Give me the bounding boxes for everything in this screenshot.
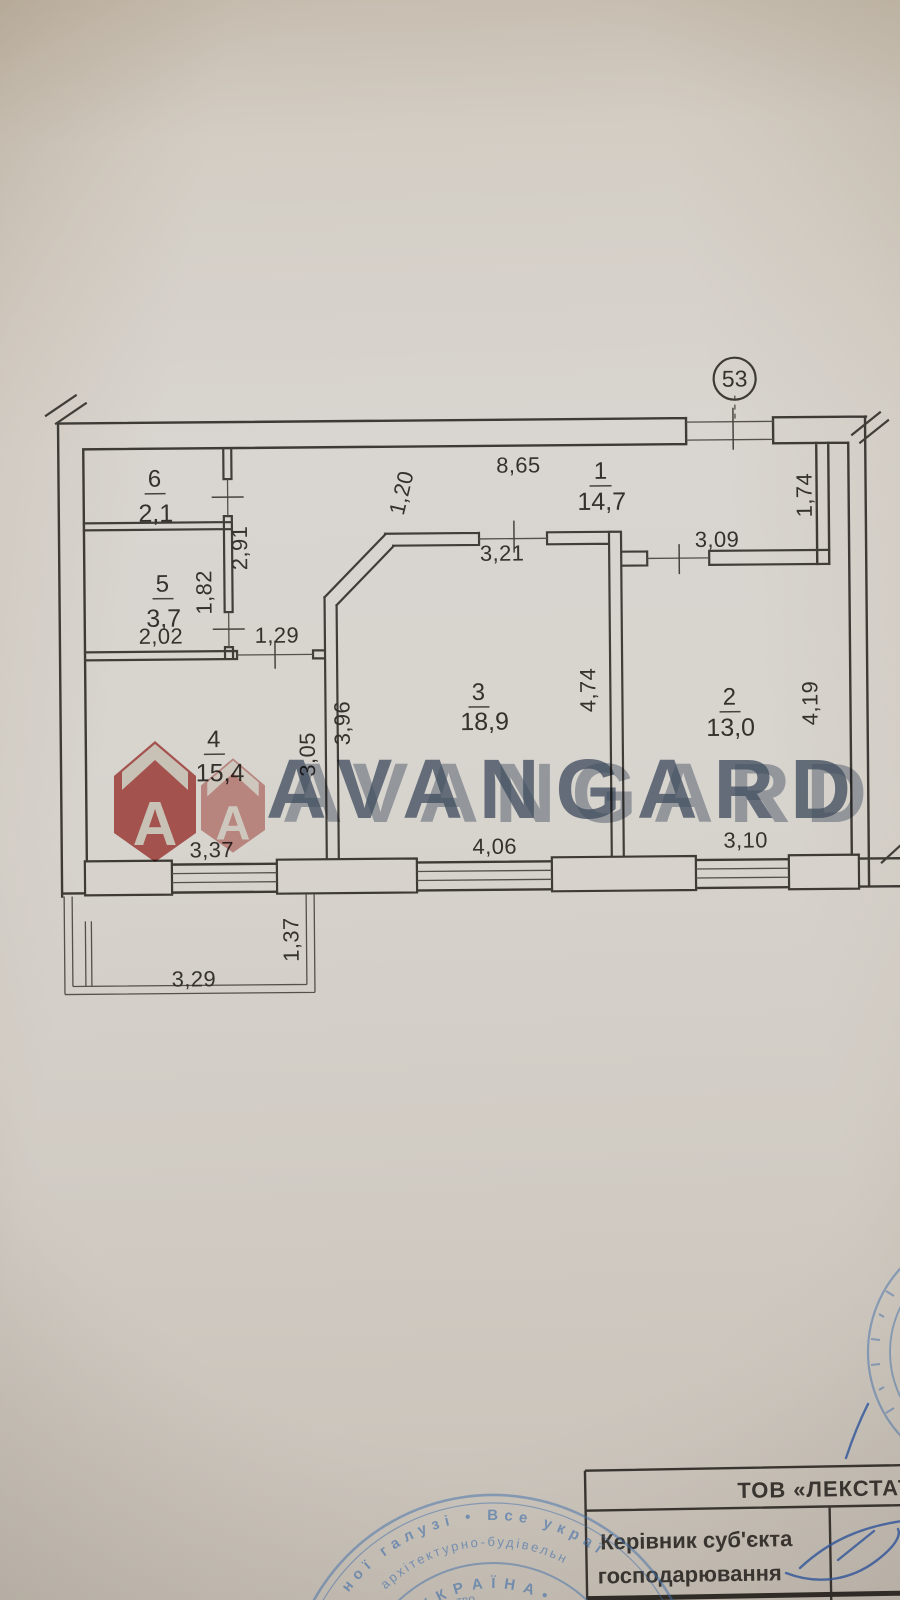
room-3-number: 3 <box>472 679 486 706</box>
room-1-number: 1 <box>594 458 608 485</box>
room-1-area: 14,7 <box>577 488 626 516</box>
dim-entry-side: 1,74 <box>791 473 816 518</box>
room-6-area: 2,1 <box>138 500 173 528</box>
room-labels: 1 14,7 2 13,0 3 18,9 4 15,4 5 3,7 6 2,1 <box>138 457 756 788</box>
room-4-number: 4 <box>207 726 221 753</box>
signature-stroke-3 <box>838 1531 874 1560</box>
room-number-underlines <box>145 485 741 755</box>
dim-room3-side: 4,74 <box>575 668 600 713</box>
signature-stroke-4 <box>846 1404 868 1458</box>
table-bottom-border <box>587 1593 900 1599</box>
dim-room2-side: 4,19 <box>797 681 822 726</box>
room-2-area: 13,0 <box>706 714 755 742</box>
signature-stroke-2 <box>800 1521 900 1568</box>
edge-stamp <box>868 1228 900 1476</box>
signature-stroke-1 <box>786 1529 899 1580</box>
company-name: ТОВ «ЛЕКСТАТ <box>737 1475 900 1503</box>
stamp-center-text: тво <box>456 1592 477 1600</box>
dim-balcony-width: 3,29 <box>172 966 217 991</box>
room-5-number: 5 <box>156 571 170 598</box>
role-line-2: господарювання <box>598 1560 782 1588</box>
dim-room2-door: 3,09 <box>695 527 740 552</box>
edge-stamp-glyph-marks <box>871 1253 900 1413</box>
dim-room3-top: 3,21 <box>480 541 525 566</box>
dim-room5-width: 2,02 <box>139 624 184 649</box>
dim-hall-side: 2,91 <box>227 526 252 571</box>
room-2-number: 2 <box>723 684 737 711</box>
stamp-inner-text: • У К Р А Ї Н А • <box>402 1566 554 1600</box>
edge-stamp-outer <box>868 1228 900 1476</box>
dim-top-width: 8,65 <box>496 452 541 477</box>
dim-room3-left: 3,96 <box>329 701 354 746</box>
floor-plan: 53 1 14,7 2 13,0 3 18,9 4 15,4 5 3,7 6 2… <box>45 356 900 994</box>
unit-badge: 53 <box>722 366 748 392</box>
dim-corridor-door: 1,29 <box>255 622 300 647</box>
footer-table: ТОВ «ЛЕКСТАТ Керівник суб'єкта господарю… <box>585 1465 900 1600</box>
dim-room5-side: 1,82 <box>191 570 216 615</box>
role-line-1: Керівник суб'єкта <box>600 1526 793 1554</box>
watermark-brand: AVANGARD <box>266 742 867 836</box>
brand-logo-icon <box>114 741 196 862</box>
floorplan-svg: A 53 1 14,7 2 13,0 3 18,9 4 <box>0 0 900 1600</box>
room-6-number: 6 <box>148 466 162 493</box>
room-3-area: 18,9 <box>460 708 509 736</box>
dim-chamfer: 1,20 <box>384 468 419 517</box>
scanned-floorplan-photo: A 53 1 14,7 2 13,0 3 18,9 4 <box>0 0 900 1600</box>
dim-balcony-depth: 1,37 <box>278 917 303 962</box>
